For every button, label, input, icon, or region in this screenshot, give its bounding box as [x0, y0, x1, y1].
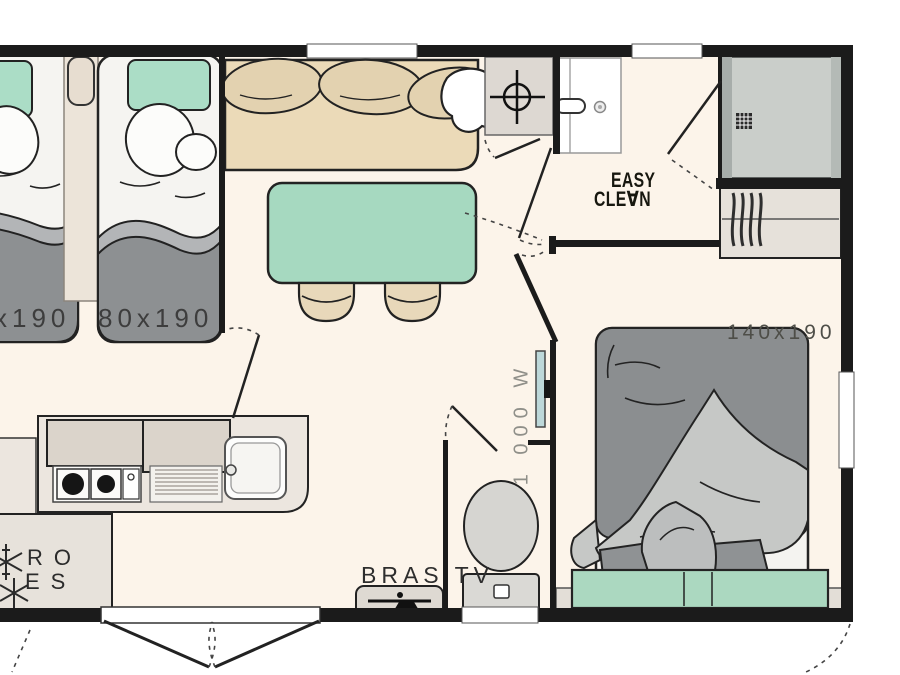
double-bed	[556, 328, 842, 612]
kitchen	[0, 416, 308, 514]
window	[462, 607, 538, 623]
faucet	[226, 465, 236, 475]
floor-plan: x190 80x190 140x190 EASY CLE∀N 1 000 W B…	[0, 0, 900, 675]
sofa-bench	[220, 55, 508, 170]
fridge-label-line1: RO	[27, 546, 82, 569]
burner	[62, 473, 84, 495]
entry-double-door	[104, 621, 319, 667]
faucet	[556, 99, 585, 113]
window	[632, 44, 702, 58]
overhead-cabinet	[143, 420, 230, 472]
tall-cabinet	[0, 438, 36, 514]
entry-door-threshold	[101, 607, 320, 623]
headboard	[572, 570, 828, 608]
chair	[299, 283, 354, 321]
bathroom-vanity	[556, 58, 621, 153]
pillow	[128, 60, 210, 110]
overhead-cabinet	[47, 420, 143, 466]
window	[307, 44, 417, 58]
nightstand	[64, 51, 98, 301]
burner	[97, 475, 115, 493]
utility-cabinet	[485, 57, 553, 135]
dining-table	[268, 183, 476, 283]
drainboard	[150, 466, 222, 502]
single-bed-right	[98, 55, 222, 342]
chair	[385, 283, 440, 321]
fridge-label-line2: ES	[25, 570, 76, 593]
bed-size-label-right: 80x190	[98, 303, 213, 334]
double-bed-size-label: 140x190	[727, 321, 836, 345]
heater-power-label: 1 000 W	[511, 334, 534, 514]
window	[839, 372, 854, 468]
shower	[722, 57, 841, 178]
flush-button	[494, 585, 509, 598]
tv-bracket-label: BRAS TV	[361, 562, 494, 589]
bed-size-label-left: x190	[0, 303, 70, 334]
shower-drain-icon	[736, 113, 752, 129]
wardrobe	[720, 188, 841, 258]
easy-clean-logo-bottom: CLE∀N	[594, 189, 651, 210]
